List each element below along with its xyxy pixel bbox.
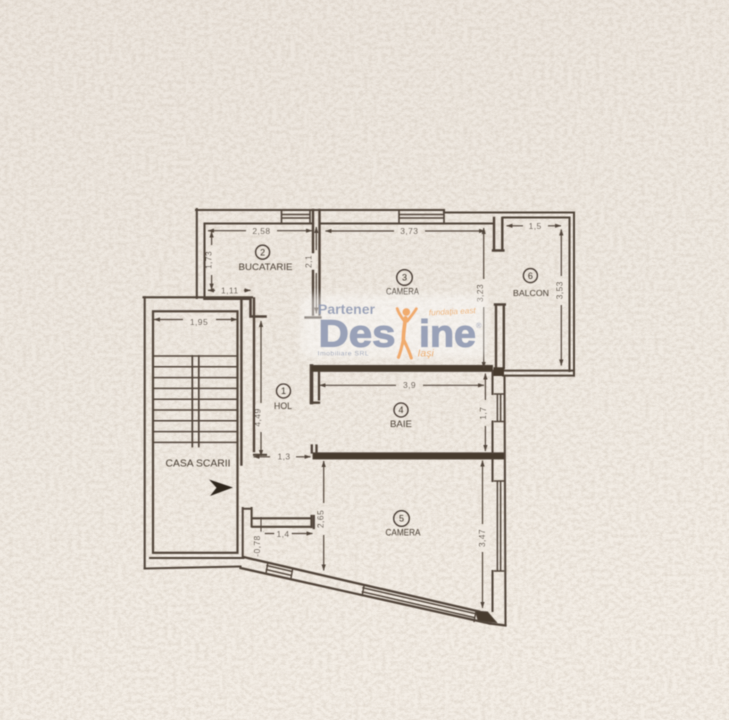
svg-text:1: 1 xyxy=(281,386,286,396)
svg-text:-0,78: -0,78 xyxy=(252,535,262,556)
svg-text:2,58: 2,58 xyxy=(252,226,270,236)
svg-text:Imobiliare SRL: Imobiliare SRL xyxy=(318,351,370,358)
svg-text:4,49: 4,49 xyxy=(253,408,263,426)
svg-text:1,11: 1,11 xyxy=(221,286,239,296)
svg-text:CASA SCARII: CASA SCARII xyxy=(166,458,231,470)
svg-text:1,73: 1,73 xyxy=(204,251,214,269)
svg-text:1,7: 1,7 xyxy=(478,407,488,420)
svg-text:CAMERA: CAMERA xyxy=(386,528,421,538)
svg-text:®: ® xyxy=(476,321,482,330)
svg-text:6: 6 xyxy=(528,271,533,281)
svg-text:BALCON: BALCON xyxy=(513,288,549,298)
svg-text:2,1: 2,1 xyxy=(303,255,313,268)
svg-text:BUCATARIE: BUCATARIE xyxy=(239,262,293,272)
svg-text:1,4: 1,4 xyxy=(276,529,289,539)
svg-text:5: 5 xyxy=(399,514,404,524)
svg-text:Des: Des xyxy=(319,314,396,356)
svg-text:3,53: 3,53 xyxy=(554,281,564,299)
svg-text:3,9: 3,9 xyxy=(403,380,416,390)
svg-text:2: 2 xyxy=(260,247,265,257)
svg-text:3,47: 3,47 xyxy=(477,529,487,547)
svg-text:1,5: 1,5 xyxy=(529,221,542,231)
svg-text:4: 4 xyxy=(398,405,403,415)
svg-text:3,73: 3,73 xyxy=(400,226,418,236)
svg-text:Iaşi: Iaşi xyxy=(418,348,435,360)
svg-text:1,95: 1,95 xyxy=(190,317,208,327)
svg-text:HOL: HOL xyxy=(274,401,292,411)
svg-text:2,65: 2,65 xyxy=(316,510,326,528)
svg-text:1,3: 1,3 xyxy=(277,452,290,462)
svg-text:BAIE: BAIE xyxy=(390,419,412,429)
svg-text:3: 3 xyxy=(402,273,407,283)
